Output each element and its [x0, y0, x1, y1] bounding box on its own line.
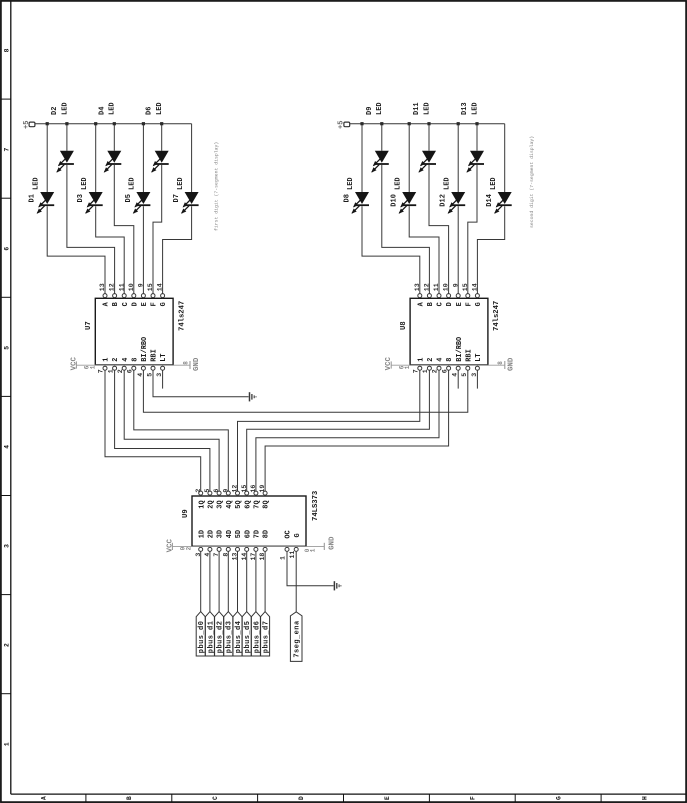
svg-text:LT: LT — [475, 353, 483, 361]
svg-text:3: 3 — [3, 544, 10, 548]
svg-text:D10: D10 — [391, 194, 399, 207]
svg-text:LED: LED — [177, 177, 185, 190]
svg-text:11: 11 — [289, 551, 296, 559]
svg-text:8: 8 — [182, 361, 189, 365]
svg-text:1: 1 — [404, 365, 411, 369]
svg-text:D3: D3 — [77, 194, 85, 202]
svg-text:1: 1 — [107, 369, 114, 373]
svg-text:8: 8 — [131, 358, 139, 362]
svg-text:5Q: 5Q — [235, 500, 243, 508]
svg-text:3Q: 3Q — [217, 500, 225, 508]
svg-text:F: F — [470, 796, 477, 800]
svg-text:D12: D12 — [440, 194, 448, 207]
svg-text:LED: LED — [129, 177, 137, 190]
svg-text:LT: LT — [160, 353, 168, 361]
svg-text:1: 1 — [417, 358, 425, 362]
svg-text:B: B — [112, 302, 120, 306]
svg-text:4D: 4D — [226, 530, 234, 538]
svg-text:74ls247: 74ls247 — [178, 301, 186, 331]
svg-text:7: 7 — [3, 147, 10, 151]
svg-text:8Q: 8Q — [263, 500, 271, 508]
svg-text:11: 11 — [118, 283, 125, 291]
svg-text:3: 3 — [471, 373, 478, 377]
svg-text:6: 6 — [441, 369, 448, 373]
svg-text:13: 13 — [414, 283, 421, 291]
svg-text:13: 13 — [99, 283, 106, 291]
svg-text:VCC: VCC — [385, 357, 393, 371]
svg-text:4Q: 4Q — [226, 500, 234, 508]
svg-text:7: 7 — [98, 369, 105, 373]
svg-text:9: 9 — [452, 283, 459, 287]
svg-text:first digit (7-segment display: first digit (7-segment display) — [214, 142, 220, 231]
svg-text:D9: D9 — [366, 107, 374, 115]
svg-text:E: E — [384, 796, 391, 800]
svg-text:RBI: RBI — [465, 349, 473, 361]
svg-text:LED: LED — [81, 177, 89, 190]
svg-text:7Q: 7Q — [254, 500, 262, 508]
svg-text:6D: 6D — [244, 530, 252, 538]
svg-text:F: F — [465, 302, 473, 306]
svg-text:15: 15 — [462, 283, 469, 291]
svg-text:6: 6 — [3, 247, 10, 251]
svg-text:BI/RBO: BI/RBO — [456, 337, 464, 362]
svg-text:D4: D4 — [98, 107, 106, 115]
svg-text:LED: LED — [376, 102, 384, 115]
svg-text:E: E — [456, 302, 464, 306]
svg-text:+5: +5 — [338, 121, 346, 129]
svg-text:74ls247: 74ls247 — [493, 301, 501, 331]
svg-text:GND: GND — [329, 536, 337, 550]
svg-text:6: 6 — [127, 369, 134, 373]
svg-text:G: G — [294, 533, 302, 537]
svg-text:OC: OC — [285, 530, 293, 538]
svg-text:15: 15 — [147, 283, 154, 291]
svg-text:GND: GND — [193, 357, 201, 371]
svg-text:9: 9 — [138, 283, 145, 287]
svg-text:1D: 1D — [198, 530, 206, 538]
svg-text:D8: D8 — [343, 194, 351, 202]
svg-text:14: 14 — [472, 283, 479, 291]
svg-text:3: 3 — [156, 373, 163, 377]
svg-text:C: C — [437, 302, 445, 306]
svg-text:8: 8 — [3, 48, 10, 52]
svg-text:A: A — [40, 796, 47, 800]
svg-text:5: 5 — [3, 346, 10, 350]
svg-text:D7: D7 — [173, 194, 181, 202]
svg-text:12: 12 — [424, 283, 431, 291]
svg-text:7: 7 — [413, 369, 420, 373]
svg-text:D: D — [131, 302, 139, 306]
svg-text:D: D — [298, 796, 305, 800]
svg-text:LED: LED — [109, 102, 117, 115]
svg-text:LED: LED — [32, 177, 40, 190]
svg-text:D1: D1 — [29, 194, 37, 202]
svg-text:F: F — [151, 302, 159, 306]
svg-text:pbus_d6: pbus_d6 — [253, 621, 261, 654]
svg-text:VCC: VCC — [166, 539, 174, 553]
svg-text:LED: LED — [423, 102, 431, 115]
svg-text:1: 1 — [89, 365, 96, 369]
svg-text:BI/RBO: BI/RBO — [141, 337, 149, 362]
svg-text:10: 10 — [443, 283, 450, 291]
svg-text:D11: D11 — [413, 102, 421, 115]
svg-text:5: 5 — [461, 373, 468, 377]
svg-text:74LS373: 74LS373 — [312, 491, 320, 521]
svg-text:4: 4 — [3, 445, 10, 449]
svg-text:2D: 2D — [208, 530, 216, 538]
svg-text:U8: U8 — [400, 321, 408, 330]
svg-text:1: 1 — [422, 369, 429, 373]
svg-text:GND: GND — [508, 357, 516, 371]
svg-text:B: B — [126, 796, 133, 800]
svg-text:11: 11 — [433, 283, 440, 291]
svg-text:1: 1 — [310, 548, 317, 552]
svg-text:G: G — [160, 302, 168, 306]
svg-text:7D: 7D — [254, 530, 262, 538]
svg-text:8: 8 — [446, 358, 454, 362]
svg-text:B: B — [427, 302, 435, 306]
svg-text:2: 2 — [112, 358, 120, 362]
svg-text:2Q: 2Q — [208, 500, 216, 508]
svg-text:14: 14 — [157, 283, 164, 291]
svg-text:LED: LED — [347, 177, 355, 190]
svg-text:LED: LED — [490, 177, 498, 190]
svg-text:+5: +5 — [23, 121, 31, 129]
svg-text:H: H — [641, 796, 648, 800]
svg-text:1: 1 — [280, 556, 287, 560]
svg-text:D2: D2 — [51, 107, 59, 115]
svg-text:4: 4 — [122, 358, 130, 362]
svg-text:4: 4 — [437, 358, 445, 362]
svg-text:10: 10 — [128, 283, 135, 291]
svg-text:C: C — [212, 796, 219, 800]
svg-text:8: 8 — [497, 361, 504, 365]
svg-text:LED: LED — [394, 177, 402, 190]
svg-text:12: 12 — [109, 283, 116, 291]
svg-text:D: D — [446, 302, 454, 306]
svg-text:VCC: VCC — [70, 357, 78, 371]
svg-text:2: 2 — [185, 546, 192, 550]
svg-text:2: 2 — [3, 643, 10, 647]
svg-text:1: 1 — [3, 742, 10, 746]
svg-text:LED: LED — [156, 102, 164, 115]
svg-text:pbus_d7: pbus_d7 — [263, 621, 271, 654]
svg-text:C: C — [122, 302, 130, 306]
svg-text:2: 2 — [117, 369, 124, 373]
svg-text:LED: LED — [443, 177, 451, 190]
svg-text:E: E — [141, 302, 149, 306]
svg-text:LED: LED — [471, 102, 479, 115]
svg-text:2: 2 — [427, 358, 435, 362]
svg-text:U9: U9 — [182, 509, 190, 518]
svg-text:LED: LED — [61, 102, 69, 115]
svg-text:7seg_ena: 7seg_ena — [294, 620, 302, 658]
svg-text:G: G — [475, 302, 483, 306]
svg-text:second digit (7-segment displa: second digit (7-segment display) — [529, 136, 535, 228]
svg-text:4: 4 — [137, 373, 144, 377]
svg-text:RBI: RBI — [151, 349, 159, 361]
svg-text:1Q: 1Q — [198, 500, 206, 508]
svg-text:D13: D13 — [461, 102, 469, 115]
svg-text:D6: D6 — [146, 107, 154, 115]
svg-text:8D: 8D — [263, 530, 271, 538]
svg-text:U7: U7 — [85, 321, 93, 330]
svg-text:D5: D5 — [125, 194, 133, 202]
svg-text:2: 2 — [432, 369, 439, 373]
svg-text:D14: D14 — [486, 194, 494, 207]
svg-text:4: 4 — [452, 373, 459, 377]
svg-text:1: 1 — [103, 358, 111, 362]
svg-text:5D: 5D — [235, 530, 243, 538]
svg-text:5: 5 — [146, 373, 153, 377]
svg-text:6Q: 6Q — [244, 500, 252, 508]
svg-text:G: G — [556, 796, 563, 800]
svg-text:3D: 3D — [217, 530, 225, 538]
